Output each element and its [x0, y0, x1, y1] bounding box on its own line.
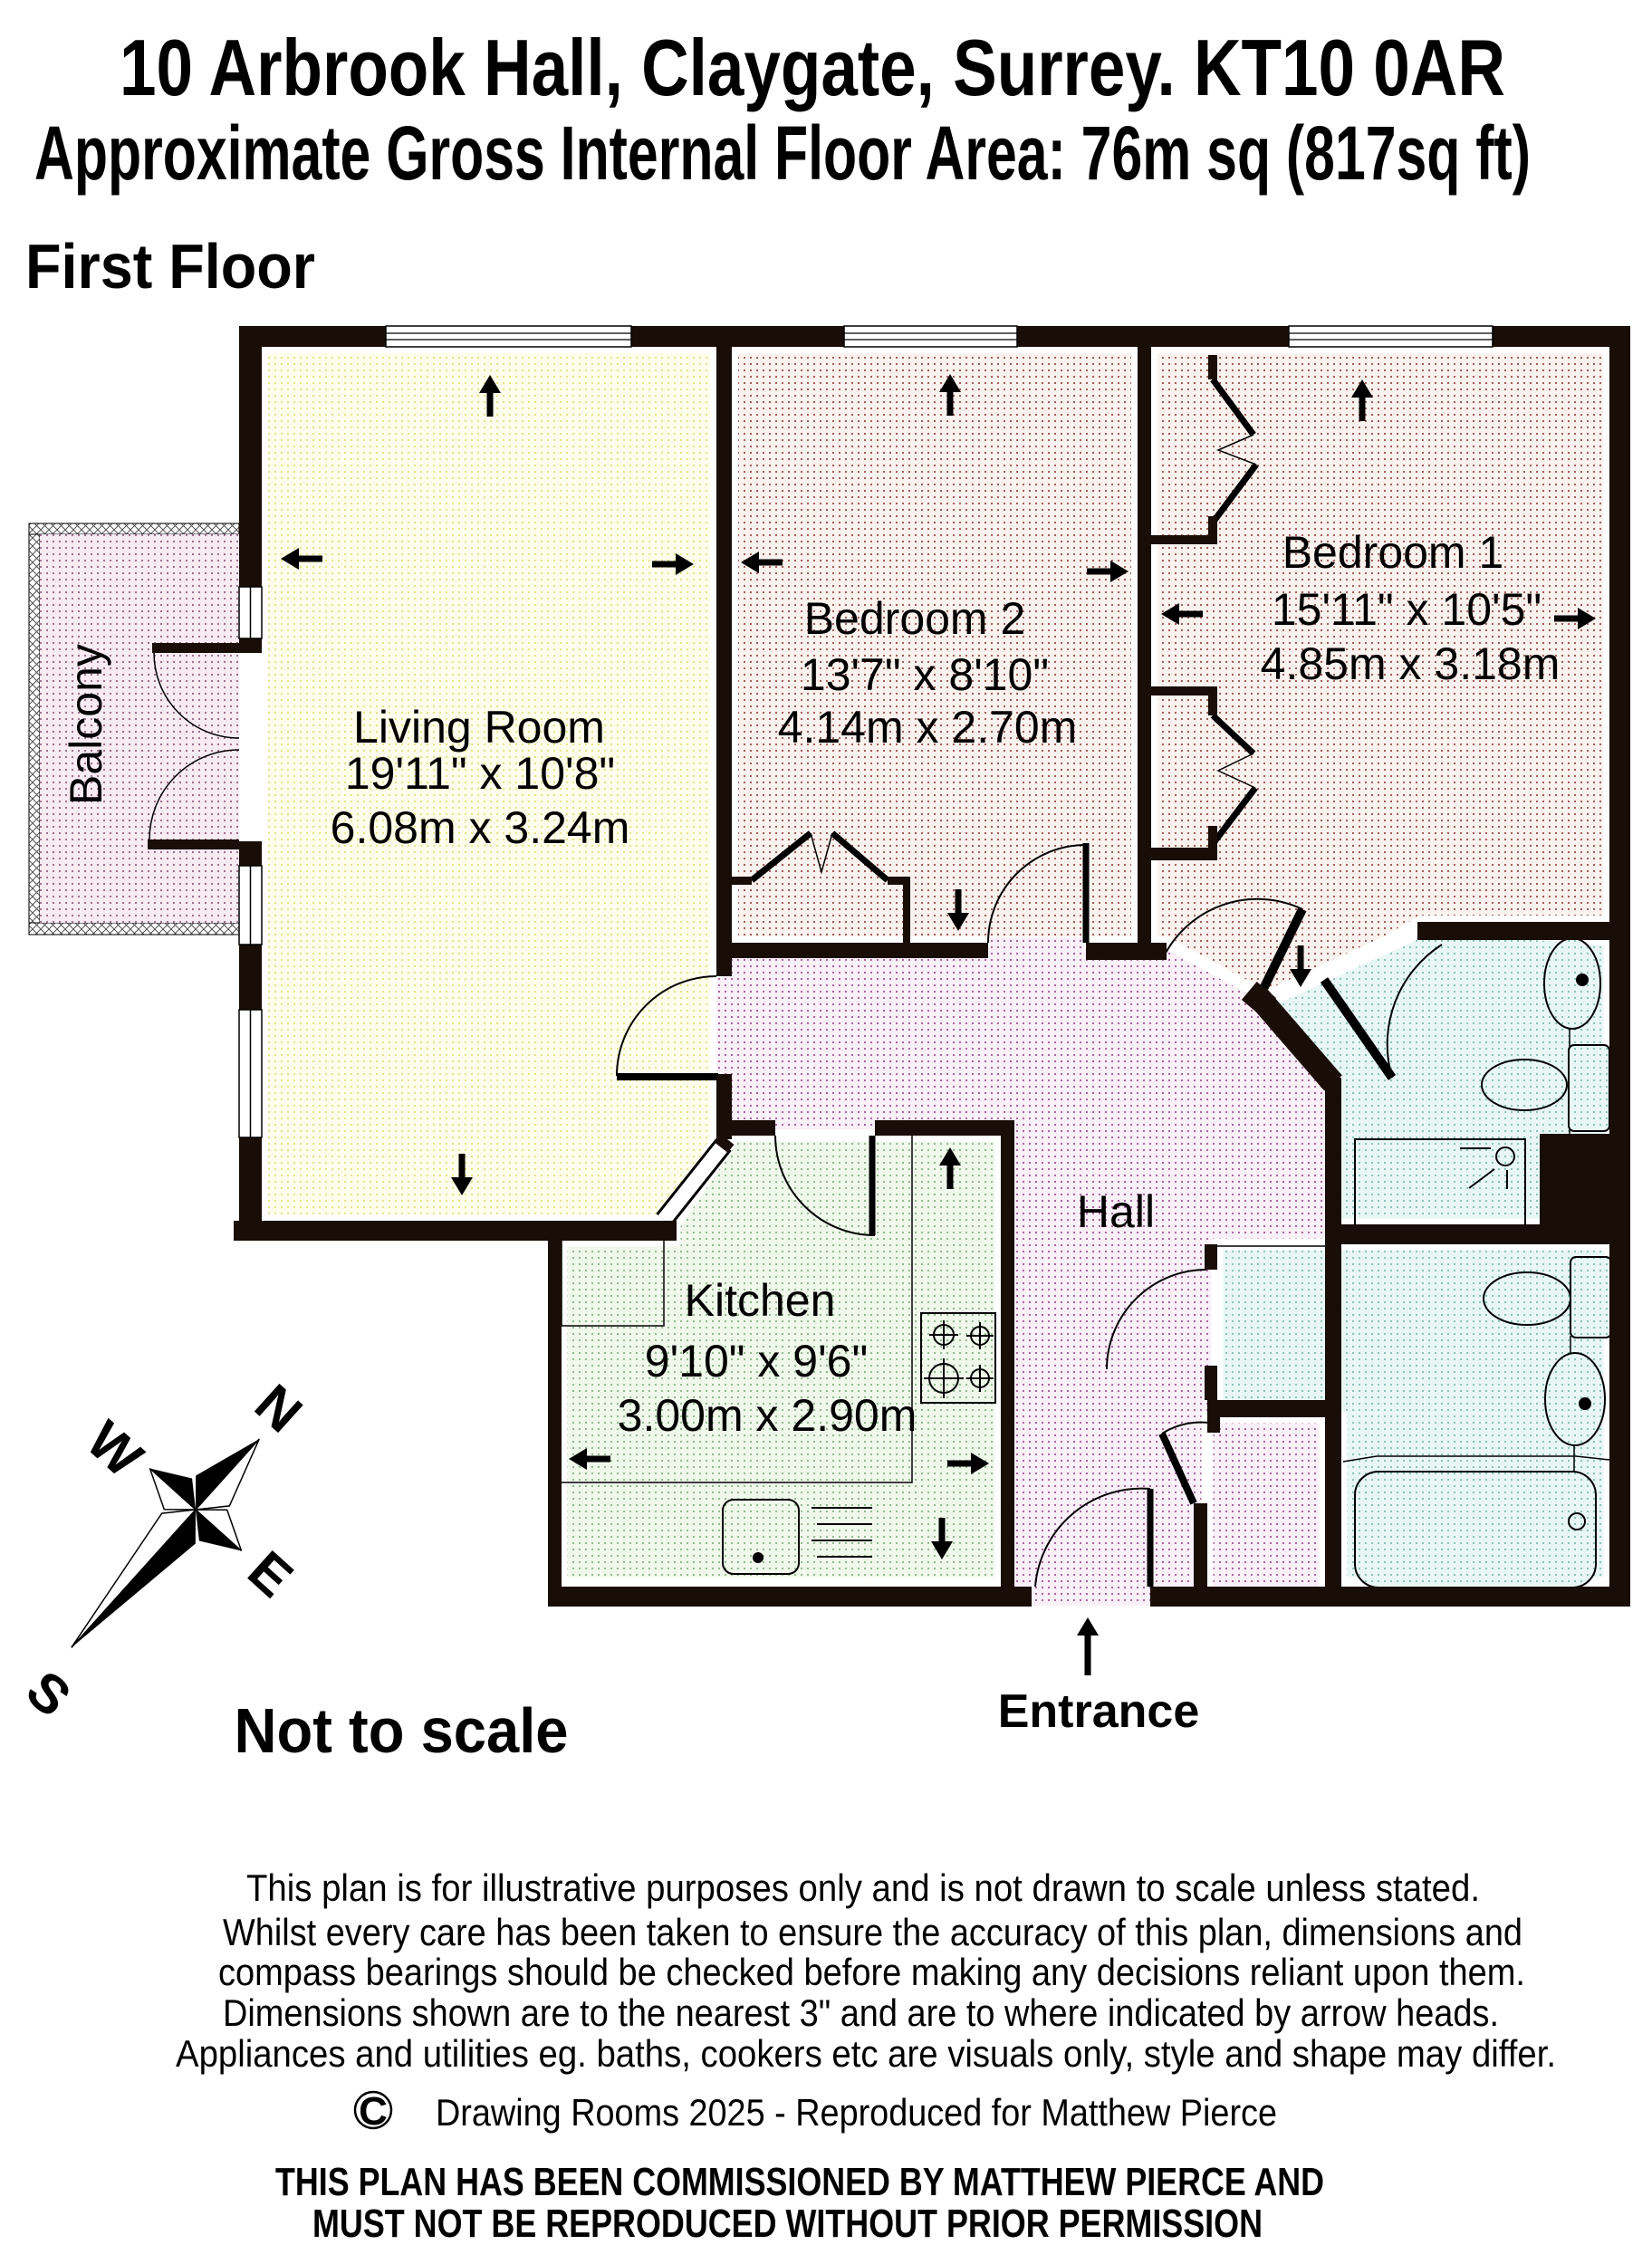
svg-text:Approximate Gross Internal Flo: Approximate Gross Internal Floor Area: 7…	[34, 110, 1531, 196]
svg-text:10 Arbrook Hall, Claygate, Sur: 10 Arbrook Hall, Claygate, Surrey. KT10 …	[120, 23, 1505, 112]
svg-text:W: W	[75, 1409, 154, 1489]
svg-text:compass bearings should be che: compass bearings should be checked befor…	[218, 1951, 1525, 1993]
svg-text:6.08m x 3.24m: 6.08m x 3.24m	[331, 802, 630, 853]
svg-text:4.14m x 2.70m: 4.14m x 2.70m	[778, 702, 1078, 753]
svg-text:Appliances and utilities eg. b: Appliances and utilities eg. baths, cook…	[176, 2032, 1556, 2075]
svg-text:S: S	[14, 1659, 82, 1729]
svg-text:3.00m x 2.90m: 3.00m x 2.90m	[618, 1390, 917, 1441]
svg-text:THIS PLAN HAS BEEN COMMISSIONE: THIS PLAN HAS BEEN COMMISSIONED BY MATTH…	[275, 2160, 1324, 2204]
svg-text:C: C	[359, 2089, 388, 2134]
svg-text:Entrance: Entrance	[998, 1685, 1200, 1738]
svg-text:Drawing Rooms 2025 - Reproduce: Drawing Rooms 2025 - Reproduced for Matt…	[436, 2091, 1277, 2134]
svg-text:4.85m x 3.18m: 4.85m x 3.18m	[1261, 638, 1561, 689]
svg-text:Bedroom 2: Bedroom 2	[804, 593, 1026, 644]
svg-text:Hall: Hall	[1077, 1186, 1155, 1237]
svg-text:First Floor: First Floor	[25, 231, 315, 302]
svg-text:Whilst every care has been tak: Whilst every care has been taken to ensu…	[223, 1911, 1522, 1953]
svg-text:E: E	[236, 1540, 304, 1609]
svg-text:13'7" x 8'10": 13'7" x 8'10"	[801, 649, 1049, 700]
svg-text:Dimensions shown are to the ne: Dimensions shown are to the nearest 3" a…	[223, 1991, 1499, 2034]
svg-text:Not to scale: Not to scale	[235, 1695, 569, 1766]
svg-text:Bedroom 1: Bedroom 1	[1282, 527, 1504, 578]
svg-text:Kitchen: Kitchen	[685, 1275, 836, 1326]
svg-text:This plan is for illustrative: This plan is for illustrative purposes o…	[246, 1866, 1480, 1909]
svg-text:19'11" x 10'8": 19'11" x 10'8"	[345, 748, 615, 799]
svg-text:15'11" x 10'5": 15'11" x 10'5"	[1272, 584, 1542, 635]
svg-text:MUST NOT BE REPRODUCED WITHOUT: MUST NOT BE REPRODUCED WITHOUT PRIOR PER…	[312, 2202, 1263, 2246]
svg-text:Balcony: Balcony	[61, 644, 111, 805]
svg-text:Living Room: Living Room	[353, 702, 605, 753]
svg-text:9'10" x 9'6": 9'10" x 9'6"	[645, 1336, 868, 1386]
svg-text:N: N	[244, 1373, 313, 1444]
